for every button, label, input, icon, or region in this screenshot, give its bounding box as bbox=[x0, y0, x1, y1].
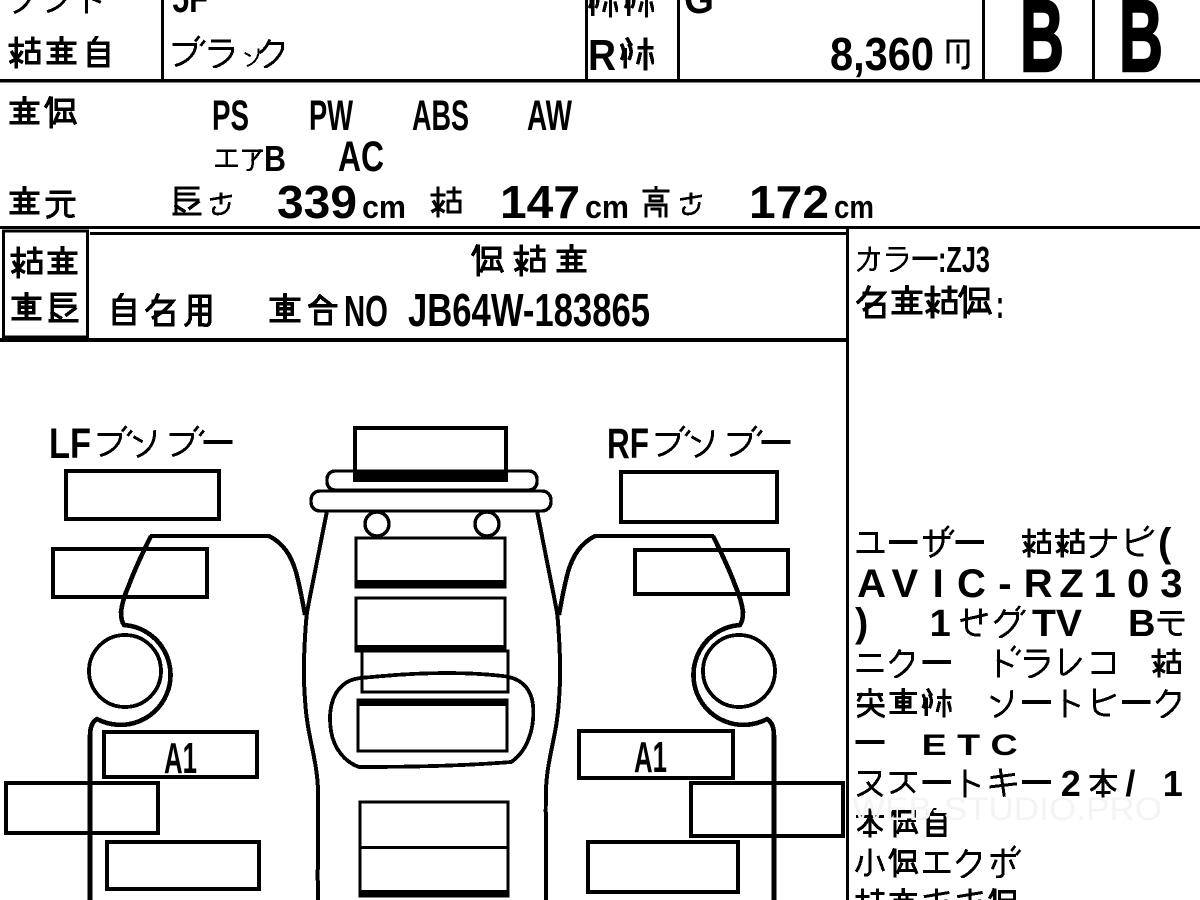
svg-text:cm: cm bbox=[585, 189, 629, 225]
svg-text:E T C: E T C bbox=[922, 729, 1018, 762]
svg-text:JB64W-183865: JB64W-183865 bbox=[408, 284, 650, 336]
svg-text:339: 339 bbox=[277, 176, 357, 228]
svg-text:WEB-STUDIO.PRO: WEB-STUDIO.PRO bbox=[852, 791, 1162, 827]
svg-text:B: B bbox=[1020, 0, 1064, 93]
svg-text:B: B bbox=[264, 138, 286, 179]
svg-text:A1: A1 bbox=[164, 734, 197, 783]
svg-text:AW: AW bbox=[527, 92, 572, 140]
svg-text:AVIC-RZ103: AVIC-RZ103 bbox=[857, 562, 1182, 606]
svg-text:ABS: ABS bbox=[412, 92, 469, 140]
svg-text:1: 1 bbox=[930, 603, 951, 645]
svg-text:8,360: 8,360 bbox=[830, 28, 934, 80]
svg-text:5F: 5F bbox=[172, 0, 208, 21]
svg-text::: : bbox=[996, 283, 1004, 327]
svg-text:1: 1 bbox=[1163, 763, 1183, 804]
svg-text:G: G bbox=[684, 0, 714, 22]
svg-text:LF: LF bbox=[49, 420, 91, 468]
svg-text:147: 147 bbox=[500, 176, 580, 228]
svg-text:NO: NO bbox=[344, 287, 388, 336]
svg-text:(: ( bbox=[1158, 521, 1172, 565]
svg-text:AC: AC bbox=[338, 133, 384, 181]
svg-text:RF: RF bbox=[607, 420, 649, 468]
svg-text:A1: A1 bbox=[634, 733, 667, 782]
svg-text:TV: TV bbox=[1032, 603, 1083, 645]
svg-text:B: B bbox=[1119, 0, 1163, 93]
svg-text::ZJ3: :ZJ3 bbox=[938, 239, 990, 280]
svg-text:B: B bbox=[1128, 603, 1155, 645]
svg-text:PS: PS bbox=[212, 92, 249, 140]
svg-text:cm: cm bbox=[362, 189, 406, 225]
svg-text:172: 172 bbox=[749, 176, 829, 228]
svg-text:R: R bbox=[588, 31, 616, 80]
svg-text:): ) bbox=[855, 601, 868, 645]
svg-text:cm: cm bbox=[834, 189, 874, 225]
